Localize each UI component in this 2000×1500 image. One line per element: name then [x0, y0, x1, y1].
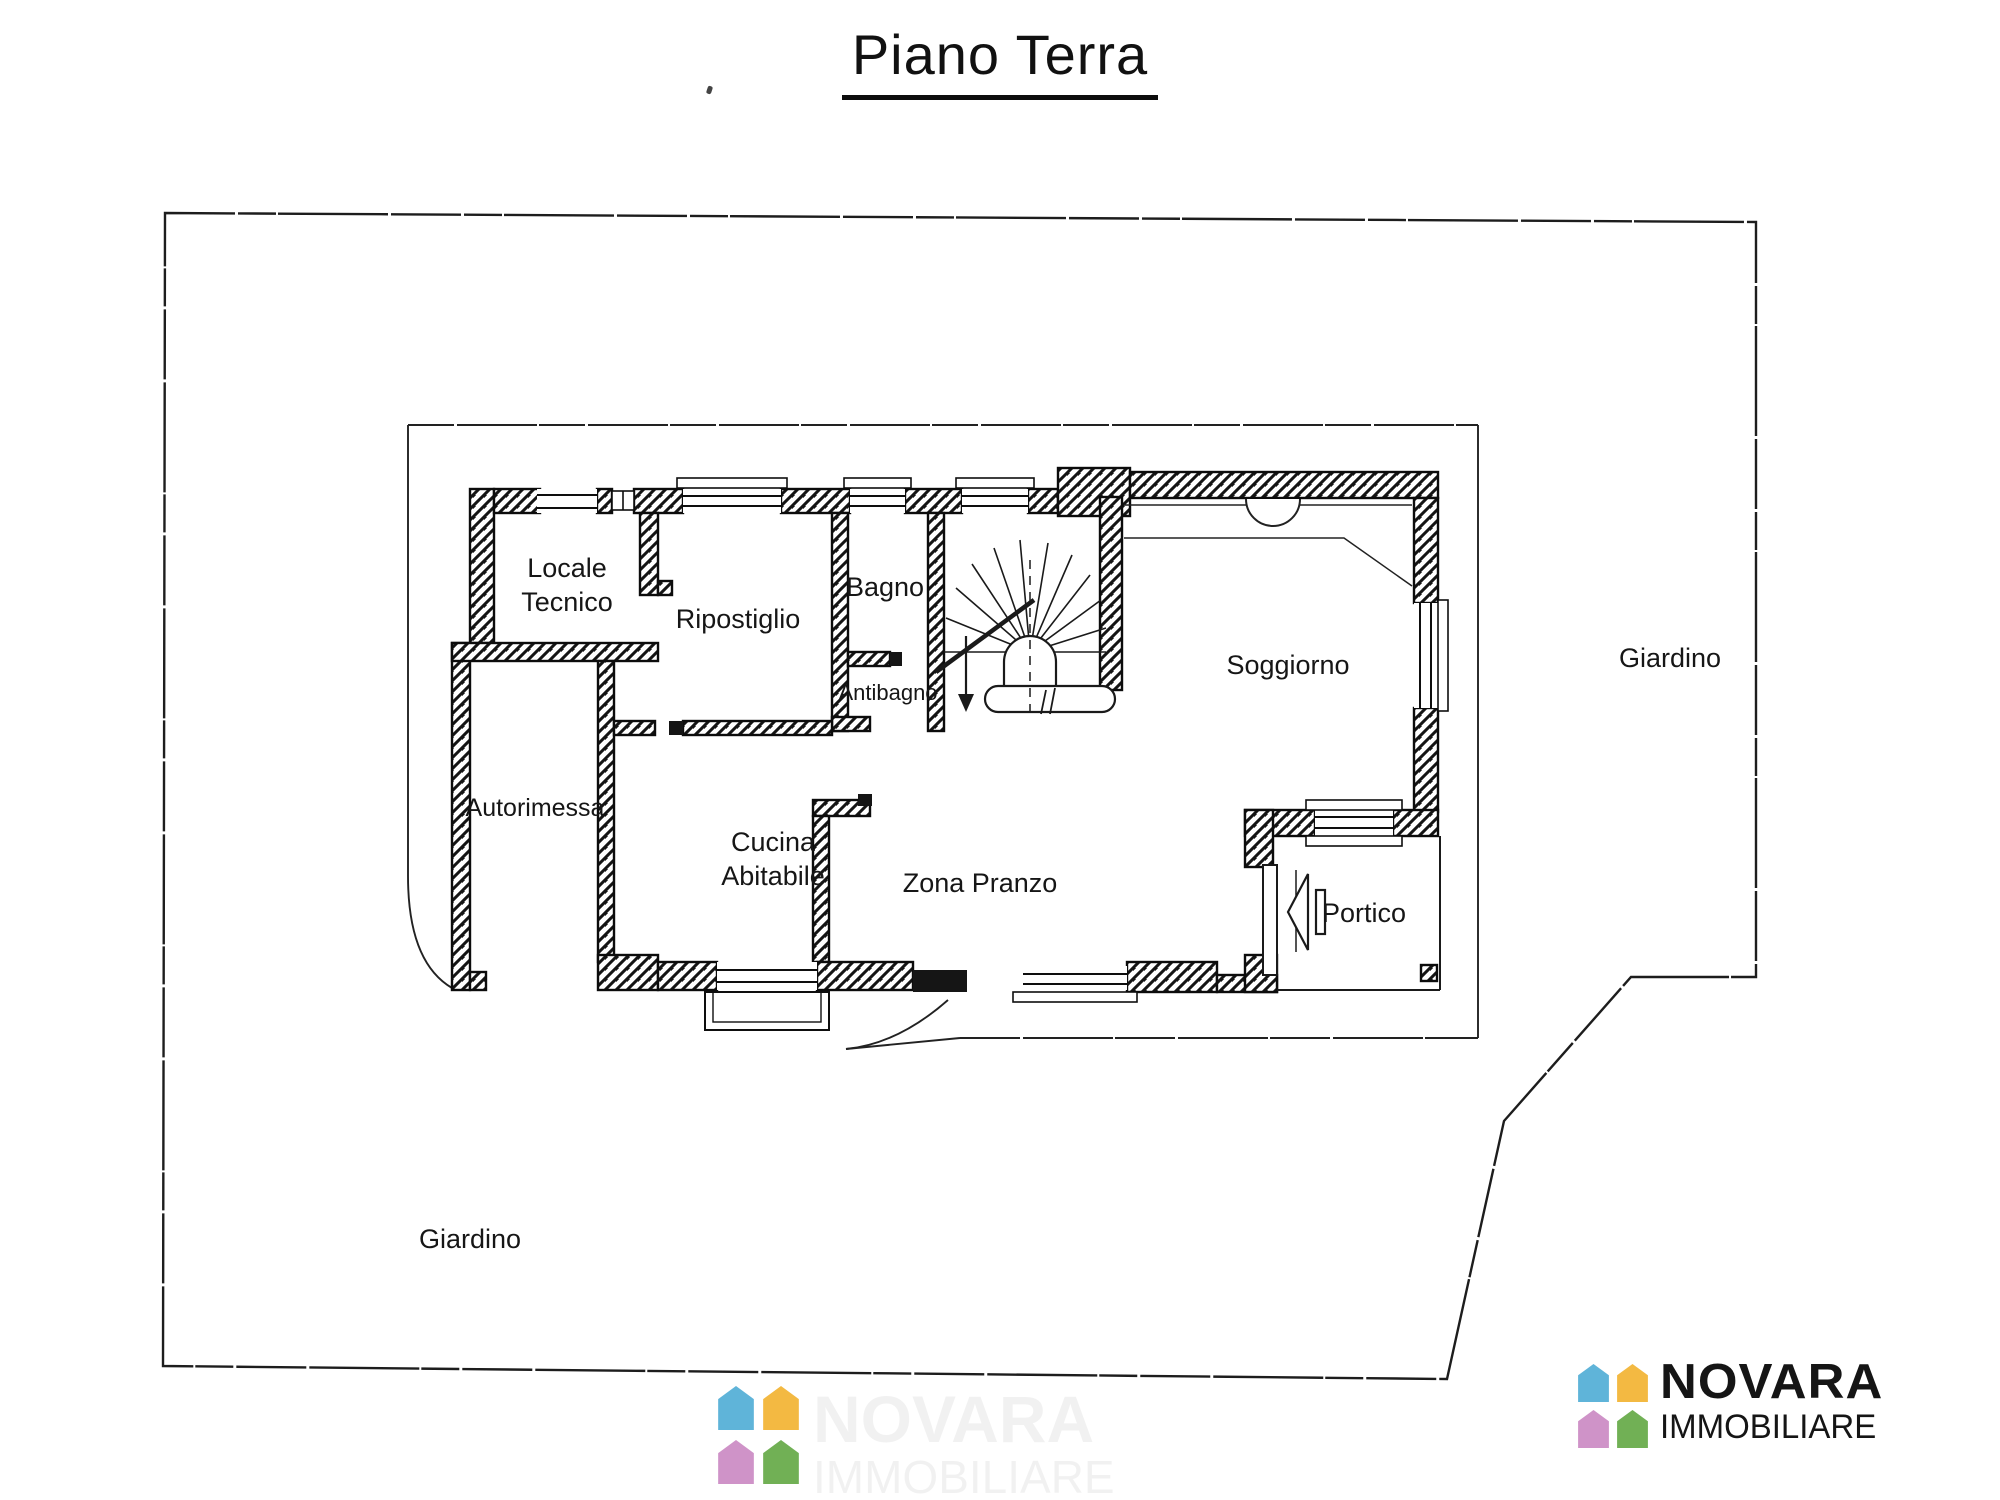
garden-step-curve	[846, 1000, 948, 1049]
room-label-autorimessa: Autorimessa	[466, 794, 605, 822]
room-label-ripostiglio: Ripostiglio	[676, 604, 801, 634]
logo-brand: NOVARA	[1660, 1358, 1892, 1407]
pentagon-house-icon	[1617, 1364, 1648, 1402]
window-soggiorno-right	[1414, 600, 1448, 711]
pentagon-house-icon	[718, 1386, 754, 1430]
room-label-antibagno: Antibagno	[838, 680, 937, 705]
property-boundary	[163, 213, 1756, 1379]
pentagon-house-icon	[763, 1440, 799, 1484]
stair-landing	[985, 686, 1115, 712]
chimney-line	[1124, 538, 1412, 586]
pentagon-house-icon	[1578, 1364, 1609, 1402]
windows	[537, 478, 1448, 1030]
pentagon-house-icon	[1578, 1410, 1609, 1448]
driveway-curve	[408, 876, 452, 988]
watermark-text: NOVARA IMMOBILIARE	[813, 1386, 1115, 1500]
soggiorno-details	[1124, 499, 1412, 586]
portico-pillar	[1421, 965, 1437, 981]
window-bagno	[844, 478, 911, 513]
room-label-cucina-1: Cucina	[731, 827, 816, 857]
portico-door-arrow-icon	[1288, 870, 1325, 952]
floor-plan-page: Piano Terra	[0, 0, 2000, 1500]
window-cucina	[705, 962, 829, 1030]
watermark-brand-sub: IMMOBILIARE	[813, 1454, 1115, 1500]
pentagon-house-icon	[763, 1386, 799, 1430]
floor-plan-drawing: Locale Tecnico Ripostiglio Bagno Antibag…	[0, 0, 2000, 1500]
agency-logo: NOVARA IMMOBILIARE	[1578, 1358, 1883, 1448]
watermark-brand: NOVARA	[813, 1386, 1115, 1452]
garden-label-left: Giardino	[419, 1224, 521, 1254]
room-label-zona-pranzo: Zona Pranzo	[903, 868, 1058, 898]
portico-colonnade	[1263, 865, 1277, 975]
fireplace-niche	[1246, 499, 1300, 526]
stair-treads	[944, 540, 1106, 652]
room-label-locale-tecnico-1: Locale	[527, 553, 607, 583]
logo-text: NOVARA IMMOBILIARE	[1660, 1358, 1883, 1444]
garden-label-right: Giardino	[1619, 643, 1721, 673]
room-label-locale-tecnico-2: Tecnico	[521, 587, 613, 617]
logo-pentagons	[1578, 1364, 1648, 1448]
pentagon-house-icon	[1617, 1410, 1648, 1448]
window-zona-pranzo	[1013, 966, 1137, 1002]
window-portico	[1306, 800, 1402, 846]
staircase	[936, 540, 1115, 714]
pentagon-house-icon	[718, 1440, 754, 1484]
room-label-portico: Portico	[1322, 898, 1406, 928]
room-label-bagno: Bagno	[846, 572, 924, 602]
watermark-pentagons	[718, 1386, 799, 1484]
watermark: NOVARA IMMOBILIARE	[718, 1386, 1115, 1500]
window-stairs	[956, 478, 1034, 513]
logo-brand-sub: IMMOBILIARE	[1660, 1410, 1876, 1444]
window-locale-tecnico	[537, 489, 634, 513]
room-label-cucina-2: Abitabile	[721, 861, 825, 891]
room-label-soggiorno: Soggiorno	[1226, 650, 1349, 680]
window-ripostiglio	[677, 478, 787, 513]
